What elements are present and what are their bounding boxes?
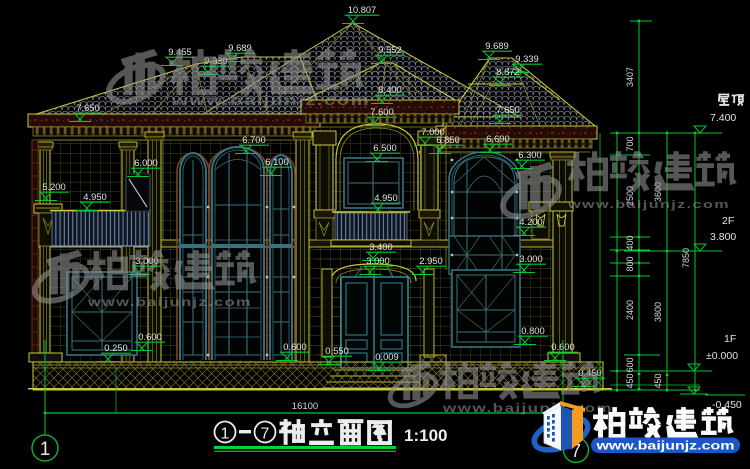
svg-text:7.650: 7.650 xyxy=(496,105,520,115)
svg-text:1:100: 1:100 xyxy=(404,426,447,445)
svg-text:9.339: 9.339 xyxy=(515,54,539,64)
svg-text:8.400: 8.400 xyxy=(378,85,402,95)
svg-text:6.700: 6.700 xyxy=(242,135,266,145)
svg-text:450: 450 xyxy=(653,373,663,388)
svg-text:6.690: 6.690 xyxy=(486,134,510,144)
svg-text:www.baijunjz.com: www.baijunjz.com xyxy=(87,297,252,309)
svg-text:3.400: 3.400 xyxy=(369,242,393,252)
svg-text:7.650: 7.650 xyxy=(76,103,100,113)
svg-text:1: 1 xyxy=(221,426,230,443)
svg-text:6.100: 6.100 xyxy=(265,157,289,167)
svg-text:800: 800 xyxy=(625,256,635,271)
svg-text:4.950: 4.950 xyxy=(83,192,107,202)
svg-text:2.950: 2.950 xyxy=(419,256,443,266)
svg-text:0.550: 0.550 xyxy=(325,346,349,356)
svg-text:www.baijunjz.com: www.baijunjz.com xyxy=(171,92,370,108)
svg-text:0.250: 0.250 xyxy=(104,343,128,353)
svg-text:www.baijunjz.com: www.baijunjz.com xyxy=(595,439,734,453)
svg-text:8.872: 8.872 xyxy=(496,67,520,77)
svg-text:7: 7 xyxy=(261,426,270,443)
svg-text:3407: 3407 xyxy=(625,67,635,87)
svg-text:400: 400 xyxy=(625,235,635,250)
svg-text:16100: 16100 xyxy=(292,401,318,412)
svg-text:9.689: 9.689 xyxy=(485,41,509,51)
svg-text:10.807: 10.807 xyxy=(348,5,376,15)
svg-text:3.000: 3.000 xyxy=(366,256,390,266)
svg-text:6.300: 6.300 xyxy=(518,150,542,160)
svg-text:3800: 3800 xyxy=(653,302,663,322)
svg-text:3.000: 3.000 xyxy=(519,254,543,264)
svg-text:2400: 2400 xyxy=(625,300,635,320)
svg-text:2F: 2F xyxy=(722,215,734,227)
svg-text:7.600: 7.600 xyxy=(370,107,394,117)
svg-text:0.009: 0.009 xyxy=(375,352,399,362)
svg-text:600: 600 xyxy=(625,357,635,372)
svg-text:6.000: 6.000 xyxy=(134,158,158,168)
svg-text:0.600: 0.600 xyxy=(138,332,162,342)
svg-text:www.baijunjz.com: www.baijunjz.com xyxy=(567,199,730,211)
svg-text:9.552: 9.552 xyxy=(378,45,402,55)
svg-text:0.800: 0.800 xyxy=(521,326,545,336)
svg-text:5.200: 5.200 xyxy=(42,182,66,192)
svg-text:6.850: 6.850 xyxy=(436,135,460,145)
svg-text:www.baijunjz.com: www.baijunjz.com xyxy=(442,401,613,415)
svg-text:±0.000: ±0.000 xyxy=(706,350,738,362)
svg-text:6.500: 6.500 xyxy=(373,143,397,153)
svg-text:1F: 1F xyxy=(724,333,736,345)
svg-text:700: 700 xyxy=(625,136,635,151)
svg-text:1: 1 xyxy=(40,439,51,460)
svg-text:0.600: 0.600 xyxy=(283,342,307,352)
svg-text:7.400: 7.400 xyxy=(710,112,736,124)
svg-text:4.950: 4.950 xyxy=(374,193,398,203)
svg-text:450: 450 xyxy=(625,373,635,388)
svg-text:3.800: 3.800 xyxy=(710,231,736,243)
